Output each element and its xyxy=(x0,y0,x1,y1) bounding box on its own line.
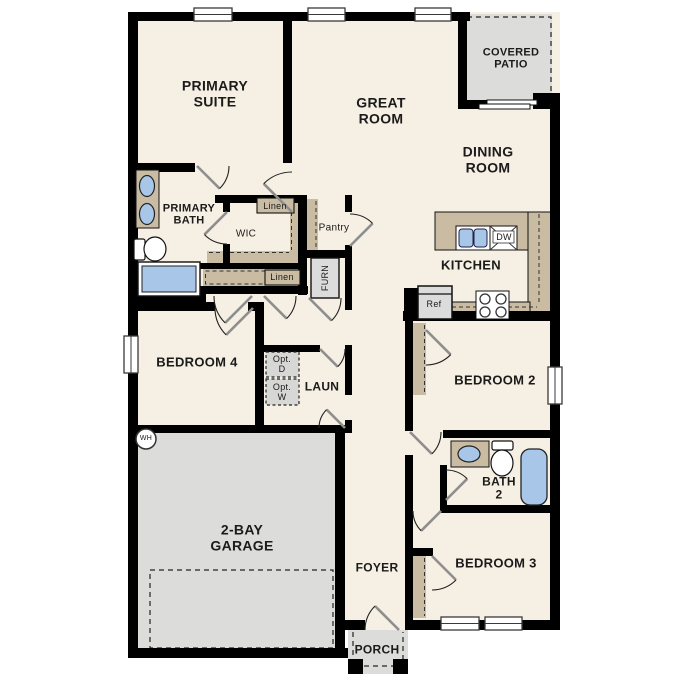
primary-tub-fixture xyxy=(138,262,200,296)
primary-vanity-fixture xyxy=(136,170,159,228)
stove-fixture xyxy=(476,291,509,319)
room-label-porch: PORCH xyxy=(355,643,400,656)
room-label-laundry: LAUN xyxy=(305,380,340,393)
room-label-kitchen: KITCHEN xyxy=(441,259,501,274)
room-label-wic: WIC xyxy=(236,228,256,239)
room-label-primary-bath: PRIMARY BATH xyxy=(158,203,220,228)
label-linen-upper: Linen xyxy=(263,201,287,211)
floor-plan: PRIMARY SUITE GREAT ROOM COVERED PATIO D… xyxy=(0,0,687,687)
kitchen-counter-right xyxy=(528,212,553,313)
room-label-garage: 2-BAY GARAGE xyxy=(195,522,289,553)
room-label-bedroom-4: BEDROOM 4 xyxy=(156,356,237,371)
room-label-pantry: Pantry xyxy=(319,222,350,233)
room-label-dining-room: DINING ROOM xyxy=(453,144,523,175)
room-label-great-room: GREAT ROOM xyxy=(341,95,421,126)
label-water-heater: WH xyxy=(140,435,152,443)
sliding-door-icon xyxy=(479,100,537,109)
label-opt-dryer: Opt. D xyxy=(269,354,295,374)
room-label-bedroom-3: BEDROOM 3 xyxy=(455,557,536,572)
primary-toilet-fixture xyxy=(134,237,166,261)
kitchen-sink-fixture xyxy=(456,226,490,250)
room-label-primary-suite: PRIMARY SUITE xyxy=(165,78,265,109)
label-refrigerator: Ref xyxy=(427,299,442,309)
bath2-vanity-fixture xyxy=(451,441,489,467)
label-opt-washer: Opt. W xyxy=(269,382,295,402)
bath2-tub-fixture xyxy=(521,449,547,505)
room-label-bedroom-2: BEDROOM 2 xyxy=(454,374,535,389)
label-furnace: FURN xyxy=(320,265,330,291)
room-label-foyer: FOYER xyxy=(356,561,399,574)
label-linen-lower: Linen xyxy=(270,272,294,282)
room-label-bath-2: BATH 2 xyxy=(478,476,520,503)
room-label-covered-patio: COVERED PATIO xyxy=(476,47,546,72)
label-dishwasher: DW xyxy=(496,232,512,242)
bath2-toilet-fixture xyxy=(491,441,513,476)
